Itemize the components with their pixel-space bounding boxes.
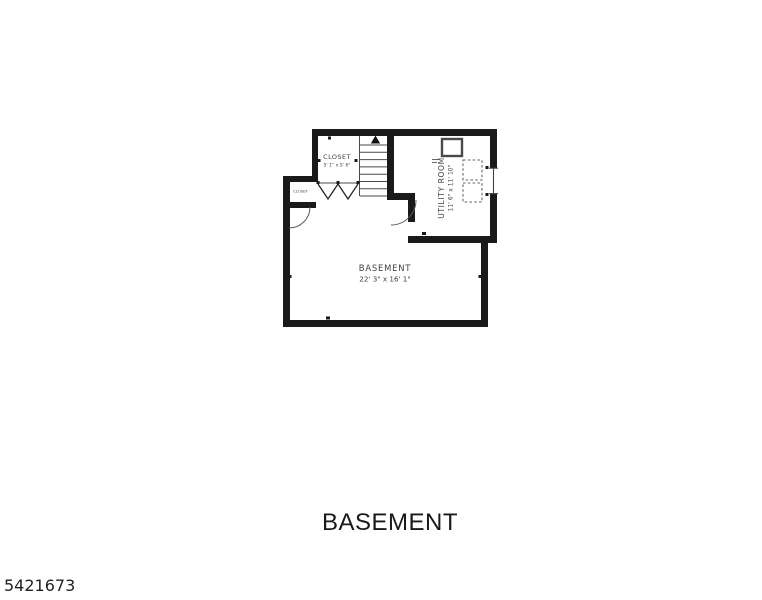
closet-room-dims: 5' 1" x 5' 6" [323, 163, 350, 169]
wall-stairs-right [387, 129, 394, 200]
wall-closet-left [312, 129, 318, 182]
wall-basement-left [283, 202, 290, 327]
small-closet-room-name: CLOSET [293, 189, 309, 194]
equipment-square-bottom [463, 183, 482, 202]
utility-equipment-dashed [463, 160, 482, 202]
utility-room-name: UTILITY ROOM [437, 157, 446, 219]
wall-top [312, 129, 497, 136]
window-tick-top [486, 166, 489, 169]
utility-room-label-group: UTILITY ROOM 11' 6" x 11' 10" [437, 157, 455, 219]
utility-room-dims: 11' 6" x 11' 10" [448, 164, 455, 211]
utility-window [486, 166, 499, 196]
stairs-treads [360, 145, 387, 196]
bifold-hinge-right [357, 181, 360, 184]
utility-fixture-box [442, 139, 462, 156]
bifold-hinge-left [317, 181, 320, 184]
walls [283, 129, 497, 327]
floor-level-title: BASEMENT [0, 509, 762, 537]
closet-room-name: CLOSET [323, 153, 351, 161]
photo-id: 5421673 [4, 576, 75, 595]
window-tick-bottom [486, 193, 489, 196]
basement-room-dims: 22' 3" x 16' 1" [359, 275, 410, 284]
wall-small-closet-bottom [283, 202, 316, 208]
bifold-door-panels [318, 184, 358, 199]
wall-small-closet-top [283, 176, 314, 182]
closet-bifold-doors [317, 181, 360, 199]
basement-room-name: BASEMENT [359, 263, 411, 273]
floor-plan-page: CLOSET 5' 1" x 5' 6" CLOSET UTILITY ROOM… [0, 0, 762, 600]
wall-basement-right [481, 241, 488, 327]
wall-bottom [283, 320, 488, 327]
bifold-hinge-center [337, 181, 340, 184]
equipment-square-top [463, 160, 482, 180]
door-arc-left [289, 207, 310, 228]
stairs-up-arrow-icon [371, 136, 380, 144]
staircase [360, 136, 388, 197]
